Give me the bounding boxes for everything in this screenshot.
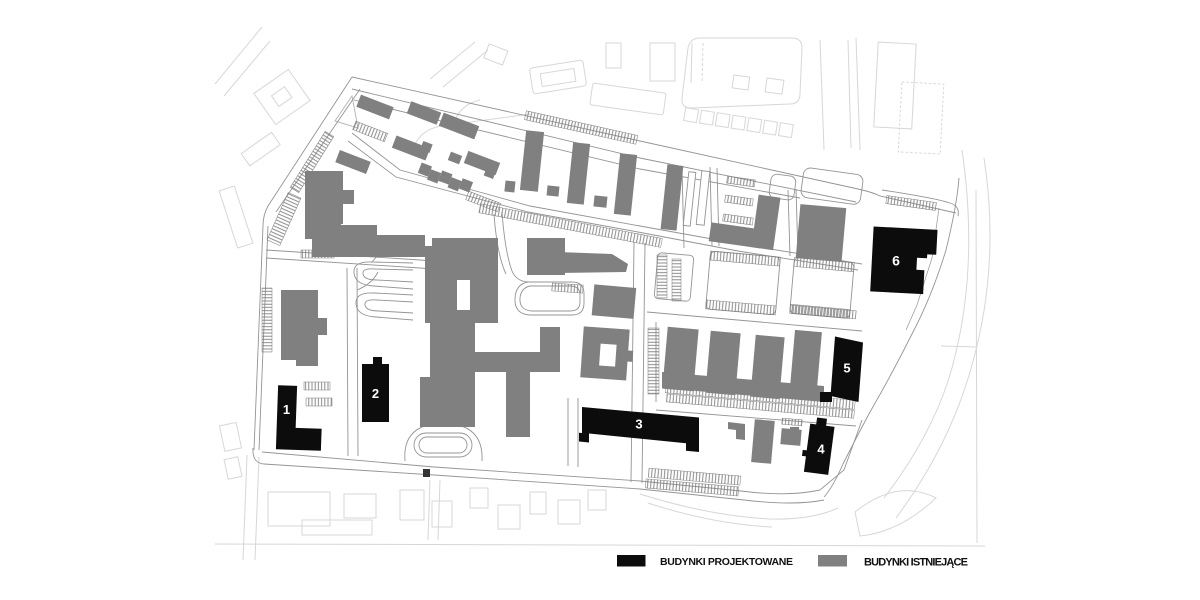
svg-text:4: 4 [817, 442, 825, 457]
svg-text:1: 1 [283, 402, 290, 417]
svg-text:BUDYNKI PROJEKTOWANE: BUDYNKI PROJEKTOWANE [660, 556, 793, 568]
svg-text:6: 6 [892, 253, 900, 269]
svg-text:BUDYNKI ISTNIEJĄCE: BUDYNKI ISTNIEJĄCE [864, 557, 968, 569]
svg-text:5: 5 [843, 361, 850, 376]
svg-text:2: 2 [372, 386, 379, 401]
svg-text:3: 3 [635, 417, 642, 432]
